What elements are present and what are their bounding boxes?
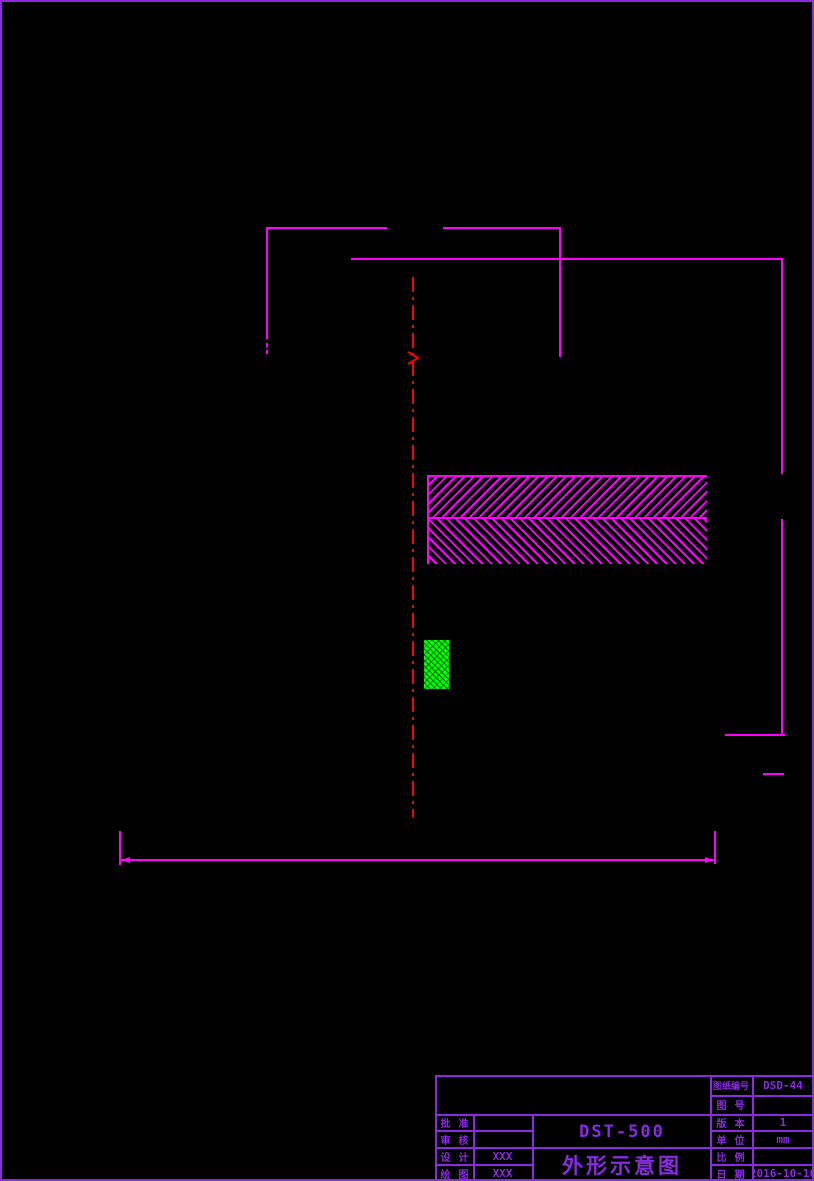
- extension-line-left-dash1: [266, 343, 268, 347]
- model-number: DST-500: [534, 1116, 710, 1147]
- date-value: 2016-10-10: [754, 1166, 812, 1180]
- version-value: 1: [754, 1115, 812, 1129]
- date-label: 日 期: [712, 1166, 750, 1180]
- bottom-ext-line-right: [714, 831, 716, 864]
- extension-line-left: [266, 227, 268, 339]
- mid-dim-line: [351, 258, 783, 260]
- drawing-title: 外形示意图: [534, 1149, 710, 1181]
- hatch-band-upper: [427, 475, 707, 519]
- drafted-value: XXX: [475, 1166, 530, 1180]
- scale-value: [754, 1149, 812, 1163]
- bottom-dim-arrow-right-icon: [705, 857, 714, 863]
- right-tick-line: [725, 734, 785, 736]
- approved-value: [475, 1115, 530, 1129]
- hatch-band-lower: [427, 519, 707, 564]
- cad-drawing-page: DST-500 外形示意图 批 准 审 核 设 计 绘 图 XXX XXX 图纸…: [0, 0, 814, 1181]
- extension-line-inner-right: [559, 227, 561, 357]
- upper-dim-line-left-segment: [267, 227, 387, 229]
- drafted-label: 绘 图: [437, 1166, 473, 1180]
- reviewed-value: [475, 1132, 530, 1146]
- center-line-arrow-icon: [406, 350, 421, 366]
- unit-value: mm: [754, 1132, 812, 1146]
- designed-label: 设 计: [437, 1149, 473, 1163]
- figure-no-label: 图 号: [712, 1097, 750, 1112]
- figure-no-value: [754, 1097, 812, 1112]
- scale-label: 比 例: [712, 1149, 750, 1163]
- green-packing-block: [424, 640, 449, 689]
- drawing-no-label: 图纸编号: [712, 1077, 750, 1093]
- bottom-dim-arrow-left-icon: [121, 857, 130, 863]
- right-extension-line-lower: [781, 519, 783, 735]
- unit-label: 单 位: [712, 1132, 750, 1146]
- extension-line-left-dash2: [266, 350, 268, 354]
- right-tick-line-small: [763, 773, 784, 775]
- designed-value: XXX: [475, 1149, 530, 1163]
- reviewed-label: 审 核: [437, 1132, 473, 1146]
- version-label: 版 本: [712, 1115, 750, 1129]
- upper-dim-line-right-segment: [443, 227, 560, 229]
- approved-label: 批 准: [437, 1115, 473, 1129]
- drawing-no-value: DSD-44: [754, 1077, 812, 1093]
- bottom-dim-line: [121, 859, 714, 861]
- right-extension-line-upper: [781, 258, 783, 474]
